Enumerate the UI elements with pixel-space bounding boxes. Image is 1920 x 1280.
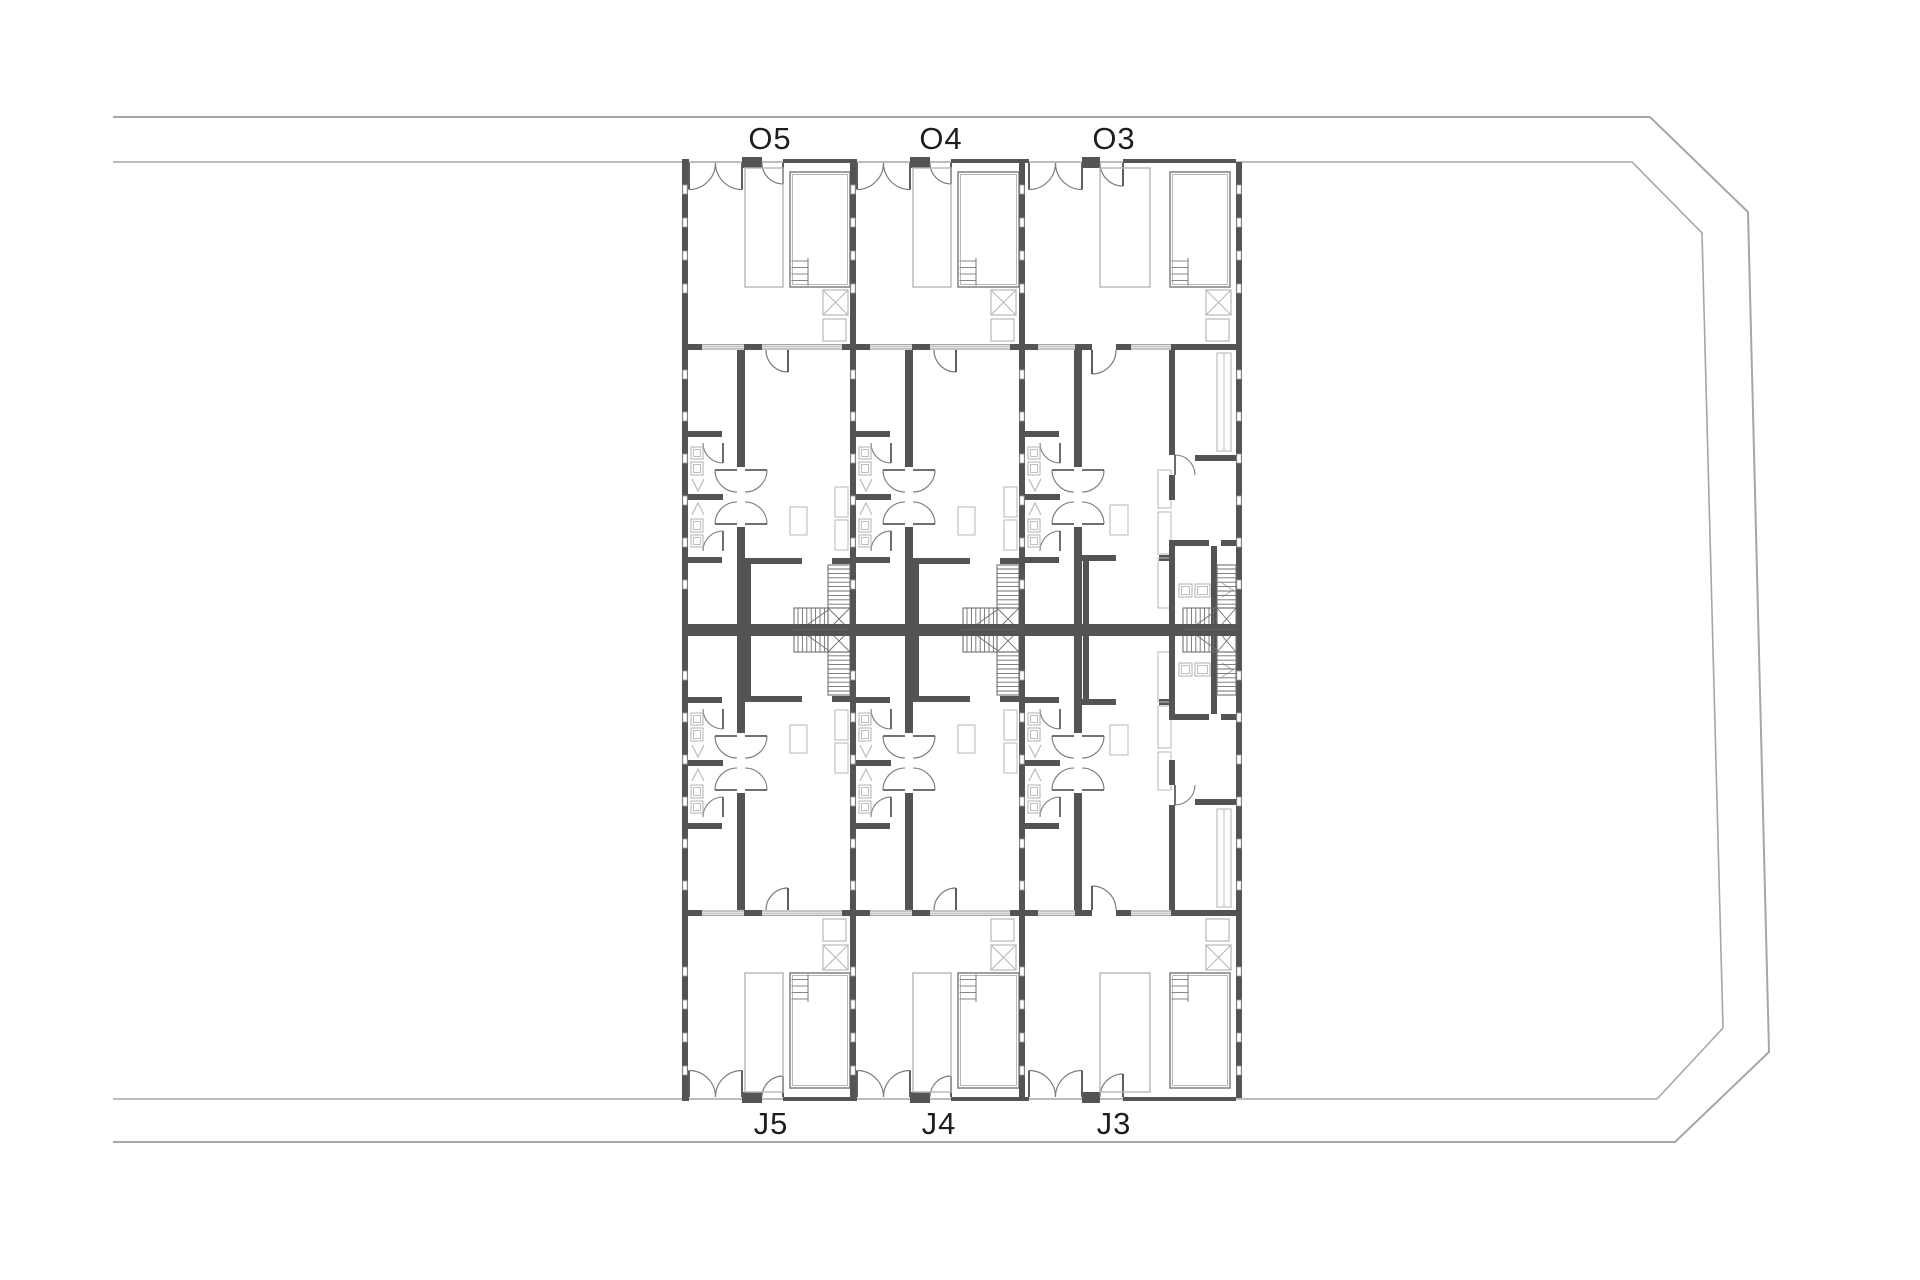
entry-door-arc [1092,350,1116,374]
garden-deck [913,168,951,287]
wall-vent [683,412,687,421]
wall-vent [1020,496,1024,505]
door-arc [871,443,891,463]
label-J5: J5 [754,1106,789,1141]
partition-wall [1169,475,1175,500]
bathroom-fixture [1031,522,1038,530]
partition-wall [688,431,722,437]
wall-vent [1237,538,1241,547]
partition-wall [1074,527,1082,630]
middle-party-wall [682,624,850,630]
bathroom-fixture [859,535,871,547]
gate-door-arc [857,163,884,190]
bathroom-fixture [862,522,869,530]
front-fence [850,159,857,163]
bathroom-fixture [859,462,871,475]
gate-door-arc [689,163,716,190]
dining-table [1110,505,1128,535]
wall-vent [1237,580,1241,589]
gate-door-arc [716,163,743,190]
bathroom-fixture [1028,447,1040,459]
partition-wall [1195,455,1236,461]
wall-vent [1020,538,1024,547]
wall-vent [1020,370,1024,379]
wall-vent [851,251,855,260]
door-arc [883,502,905,524]
partition-wall [913,558,970,564]
bathroom-fixture [691,535,703,547]
partition-wall [832,558,850,564]
facade-wall [842,344,850,350]
bathroom-fixture [1028,462,1040,475]
wall-vent [683,251,687,260]
wall-vent [683,454,687,463]
kitchen-counter [1004,487,1017,517]
bathroom-fixture [691,519,703,532]
fence-pier [910,157,930,168]
wall-vent [683,218,687,227]
bathroom-fixture [694,522,701,530]
wall-vent [683,185,687,194]
bathroom-fixture [862,450,869,457]
partition-wall [1211,546,1217,630]
dining-table [958,507,975,535]
fence-pier [1082,157,1100,168]
wall-vent [851,185,855,194]
partition-wall [856,557,890,563]
wall-vent [1237,412,1241,421]
party-wall [682,162,688,630]
bathroom-fixture [859,519,871,532]
partition-wall [1175,540,1209,546]
door-arc [703,443,723,463]
gate-door-arc [930,163,951,184]
door-arc [1082,470,1104,492]
partition-wall [1025,494,1060,500]
door-arc [715,470,737,492]
shower-symbol [692,479,704,491]
wall-vent [1020,454,1024,463]
patio-wall [1083,561,1089,630]
wall-vent [1237,218,1241,227]
shower-symbol [1222,583,1233,597]
bathroom-fixture [1198,587,1208,595]
patio-wall [745,564,751,630]
gate-door-arc [1056,163,1083,190]
wall-vent [683,284,687,293]
wall-vent [1237,251,1241,260]
partition-wall [1074,350,1082,467]
shower-symbol [1029,503,1041,515]
door-arc [745,502,767,524]
wall-vent [683,496,687,505]
unit-half-O5 [682,157,850,630]
shower-symbol [1029,479,1041,491]
gate-door-arc [1029,163,1056,190]
front-fence [1123,159,1236,163]
bathroom-fixture [691,462,703,475]
facade-wall [850,344,870,350]
wall-vent [851,218,855,227]
service-box [823,319,846,341]
kitchen-counter [835,487,848,517]
unit-half-J3 [1019,630,1242,1103]
door-arc [1040,531,1060,551]
unit-O3-J3 [1019,157,1242,1103]
partition-wall [1025,557,1059,563]
front-fence [951,159,1019,163]
bathroom-fixture [862,538,869,545]
front-fence [682,159,689,163]
label-O3: O3 [1092,121,1135,156]
bathroom-fixture [1031,450,1038,457]
facade-wall [1010,344,1019,350]
pool [1170,172,1230,287]
bathroom-fixture [1182,587,1190,595]
door-arc [913,470,935,492]
door-arc [745,470,767,492]
wall-vent [1237,185,1241,194]
shower-symbol [692,503,704,515]
facade-wall [744,344,762,350]
label-J4: J4 [922,1106,957,1141]
middle-party-wall [1019,624,1242,630]
unit-half-J4 [850,630,1019,1103]
shower-symbol [860,503,872,515]
shower-symbol [860,479,872,491]
bathroom-fixture [1028,535,1040,547]
partition-wall [737,527,745,630]
partition-wall [905,527,913,630]
door-arc [715,502,737,524]
dining-table [790,507,807,535]
gate-door-arc [1100,163,1123,186]
wall-vent [851,580,855,589]
kitchen-counter [835,520,848,550]
facade-wall [682,344,702,350]
unit-half-J5 [682,630,850,1103]
wall-vent [1237,370,1241,379]
wall-vent [1237,284,1241,293]
partition-wall [745,558,802,564]
wall-vent [1020,580,1024,589]
door-arc [1052,470,1074,492]
kitchen-counter [1004,520,1017,550]
facade-wall [912,344,930,350]
pool [790,172,850,287]
wall-vent [1020,284,1024,293]
bathroom-fixture [694,538,701,545]
garden-deck [1100,168,1150,287]
bathroom-fixture [691,447,703,459]
wall-vent [683,580,687,589]
facade-wall [1171,344,1236,350]
unit-half-O3 [1019,157,1242,630]
gate-door-arc [762,163,783,184]
floor-plan-drawing: O5 O4 O3 J5 J4 J3 [0,0,1920,1280]
wall-vent [851,496,855,505]
wall-vent [851,370,855,379]
wall-vent [851,538,855,547]
partition-wall [856,494,891,500]
bathroom-fixture [1179,584,1192,597]
door-arc [871,531,891,551]
bathroom-fixture [694,465,701,473]
partition-wall [1025,431,1059,437]
door-arc [1175,455,1195,475]
bathroom-fixture [859,447,871,459]
wall-vent [1237,454,1241,463]
wall-vent [851,454,855,463]
facade-wall [1019,344,1038,350]
wall-vent [851,412,855,421]
facade-wall [1075,344,1092,350]
partition-wall [688,494,723,500]
middle-party-wall [850,624,1019,630]
label-O4: O4 [919,121,962,156]
front-fence [783,159,850,163]
party-wall [1019,162,1025,630]
unit-half-O4 [850,157,1019,630]
wall-vent [1020,218,1024,227]
service-box [1206,319,1229,341]
partition-wall [905,350,913,467]
wall-vent [1020,251,1024,260]
partition-wall [1169,350,1175,455]
party-wall [1236,162,1242,630]
pool [958,172,1019,287]
service-box [991,319,1014,341]
bathroom-fixture [694,450,701,457]
bathroom-fixture [1031,538,1038,545]
wall-vent [683,538,687,547]
label-J3: J3 [1097,1106,1132,1141]
door-arc [1040,443,1060,463]
townhouse-units [682,157,1242,1103]
partition-wall [856,431,890,437]
partition-wall [688,557,722,563]
wall-vent [683,370,687,379]
bathroom-fixture [1028,519,1040,532]
partition-wall [1169,540,1175,630]
entry-door-arc [934,350,956,372]
unit-O5-J5 [682,157,850,1103]
partition-wall [1221,540,1236,546]
facade-wall [1116,344,1131,350]
partition-wall [737,350,745,467]
entry-door-arc [766,350,788,372]
door-arc [913,502,935,524]
door-arc [703,531,723,551]
bathroom-fixture [862,465,869,473]
bathroom-fixture [1031,465,1038,473]
wall-vent [1237,496,1241,505]
wall-vent [851,284,855,293]
partition-wall [1000,558,1019,564]
garden-deck [745,168,783,287]
label-O5: O5 [748,121,791,156]
wall-vent [1020,185,1024,194]
wall-vent [1020,412,1024,421]
door-arc [1082,502,1104,524]
gate-door-arc [884,163,911,190]
partition-wall [1082,555,1116,561]
door-arc [1052,502,1074,524]
door-arc [883,470,905,492]
unit-O4-J4 [850,157,1019,1103]
site-plan-page: O5 O4 O3 J5 J4 J3 [0,0,1920,1280]
patio-wall [913,564,919,630]
party-wall [850,162,856,630]
fence-pier [742,157,762,168]
front-fence [1019,159,1029,163]
